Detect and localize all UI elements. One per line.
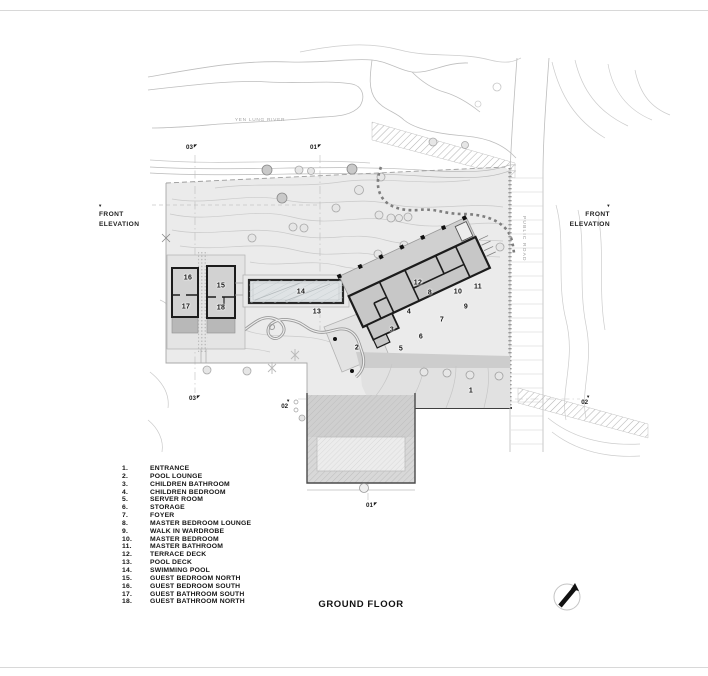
front-elevation-left-label: FRONT ELEVATION [99,210,141,230]
room-number-label: 10 [454,289,462,296]
legend-item-number: 17. [122,591,150,599]
legend-item-number: 3. [122,481,150,489]
legend-item: 3.CHILDREN BATHROOM [122,481,352,489]
section-marker: 01◤ [366,501,377,509]
legend-item-label: GUEST BATHROOM SOUTH [150,591,245,599]
legend-item-number: 6. [122,504,150,512]
section-arrow-icon: ◤ [318,143,321,148]
section-marker: ▾02 [580,394,589,406]
section-marker: 03◤ [186,143,197,151]
room-number-label: 12 [414,280,422,287]
room-number-label: 7 [440,317,444,324]
legend-item-label: CHILDREN BEDROOM [150,489,226,497]
legend-item-label: MASTER BATHROOM [150,543,223,551]
river [148,45,521,158]
east-landscape [548,60,670,456]
room-number-label: 2 [355,345,359,352]
north-arrow-icon [554,583,580,610]
front-elevation-right-label: FRONT ELEVATION [568,210,610,230]
page-title: GROUND FLOOR [296,599,426,610]
room-number-label: 4 [407,309,411,316]
legend-item-number: 4. [122,489,150,497]
legend-item-label: ENTRANCE [150,465,189,473]
legend-item-label: SWIMMING POOL [150,567,210,575]
legend-item-number: 10. [122,536,150,544]
legend-item-label: MASTER BEDROOM LOUNGE [150,520,251,528]
section-marker: ▾02 [280,398,289,410]
room-number-label: 6 [419,334,423,341]
legend-item-number: 2. [122,473,150,481]
river-label: YEN LUNG RIVER [214,118,306,123]
legend-item-label: SERVER ROOM [150,496,203,504]
legend-item: 17.GUEST BATHROOM SOUTH [122,591,352,599]
legend-item-number: 11. [122,543,150,551]
legend-item-number: 15. [122,575,150,583]
legend-item: 8.MASTER BEDROOM LOUNGE [122,520,352,528]
front-elevation-right: ▾ FRONT ELEVATION [566,203,610,230]
legend-item: 4.CHILDREN BEDROOM [122,489,352,497]
room-number-label: 16 [184,275,192,282]
elevation-arrow-icon: ▾ [99,203,143,210]
room-number-label: 11 [474,284,482,291]
legend-item: 10.MASTER BEDROOM [122,536,352,544]
legend-item-number: 9. [122,528,150,536]
section-marker-number: 01 [310,144,317,151]
legend-item: 12.TERRACE DECK [122,551,352,559]
section-marker-number: 03 [186,144,193,151]
legend-item-label: MASTER BEDROOM [150,536,219,544]
legend-item-label: FOYER [150,512,174,520]
legend-item: 5.SERVER ROOM [122,496,352,504]
section-marker-number: 02 [281,403,288,410]
room-number-label: 5 [399,346,403,353]
section-marker-number: 01 [366,502,373,509]
elevation-arrow-icon: ▾ [566,203,610,210]
legend-item-number: 13. [122,559,150,567]
legend-item-number: 12. [122,551,150,559]
front-elevation-left: ▾ FRONT ELEVATION [99,203,143,230]
room-number-label: 17 [182,304,190,311]
legend-item: 16.GUEST BEDROOM SOUTH [122,583,352,591]
section-arrow-icon: ◤ [194,143,197,148]
room-number-label: 14 [297,289,305,296]
section-arrow-icon: ◤ [197,394,200,399]
legend-item-label: TERRACE DECK [150,551,206,559]
legend-item: 7.FOYER [122,512,352,520]
legend-item-number: 5. [122,496,150,504]
section-marker: 03◤ [189,394,200,402]
section-marker: 01◤ [310,143,321,151]
legend-item-label: WALK IN WARDROBE [150,528,224,536]
legend: 1.ENTRANCE2.POOL LOUNGE3.CHILDREN BATHRO… [122,465,352,606]
legend-item-label: CHILDREN BATHROOM [150,481,230,489]
legend-item: 11.MASTER BATHROOM [122,543,352,551]
section-marker-number: 03 [189,395,196,402]
legend-item-label: POOL DECK [150,559,192,567]
legend-item: 9.WALK IN WARDROBE [122,528,352,536]
legend-item: 14.SWIMMING POOL [122,567,352,575]
legend-item-label: GUEST BEDROOM SOUTH [150,583,240,591]
room-number-label: 8 [428,290,432,297]
room-number-label: 1 [469,388,473,395]
legend-item-label: POOL LOUNGE [150,473,202,481]
legend-item-number: 18. [122,598,150,606]
legend-item-label: GUEST BATHROOM NORTH [150,598,245,606]
room-number-label: 3 [390,327,394,334]
legend-item: 6.STORAGE [122,504,352,512]
guest-wing [167,252,252,363]
legend-item: 15.GUEST BEDROOM NORTH [122,575,352,583]
plan-artwork [0,0,708,676]
legend-item: 13.POOL DECK [122,559,352,567]
room-number-label: 9 [464,304,468,311]
legend-item-number: 7. [122,512,150,520]
section-marker-number: 02 [581,399,588,406]
room-number-label: 13 [313,309,321,316]
legend-item: 2.POOL LOUNGE [122,473,352,481]
legend-item-label: STORAGE [150,504,185,512]
legend-item-number: 8. [122,520,150,528]
room-number-label: 15 [217,283,225,290]
legend-item-number: 16. [122,583,150,591]
site-plan-sheet: YEN LUNG RIVER PUBLIC ROAD ▾ FRONT ELEVA… [0,0,708,676]
section-arrow-icon: ◤ [374,501,377,506]
legend-item: 1.ENTRANCE [122,465,352,473]
road-label: PUBLIC ROAD [521,216,526,286]
legend-item-label: GUEST BEDROOM NORTH [150,575,241,583]
legend-item-number: 1. [122,465,150,473]
room-number-label: 18 [217,305,225,312]
legend-item-number: 14. [122,567,150,575]
